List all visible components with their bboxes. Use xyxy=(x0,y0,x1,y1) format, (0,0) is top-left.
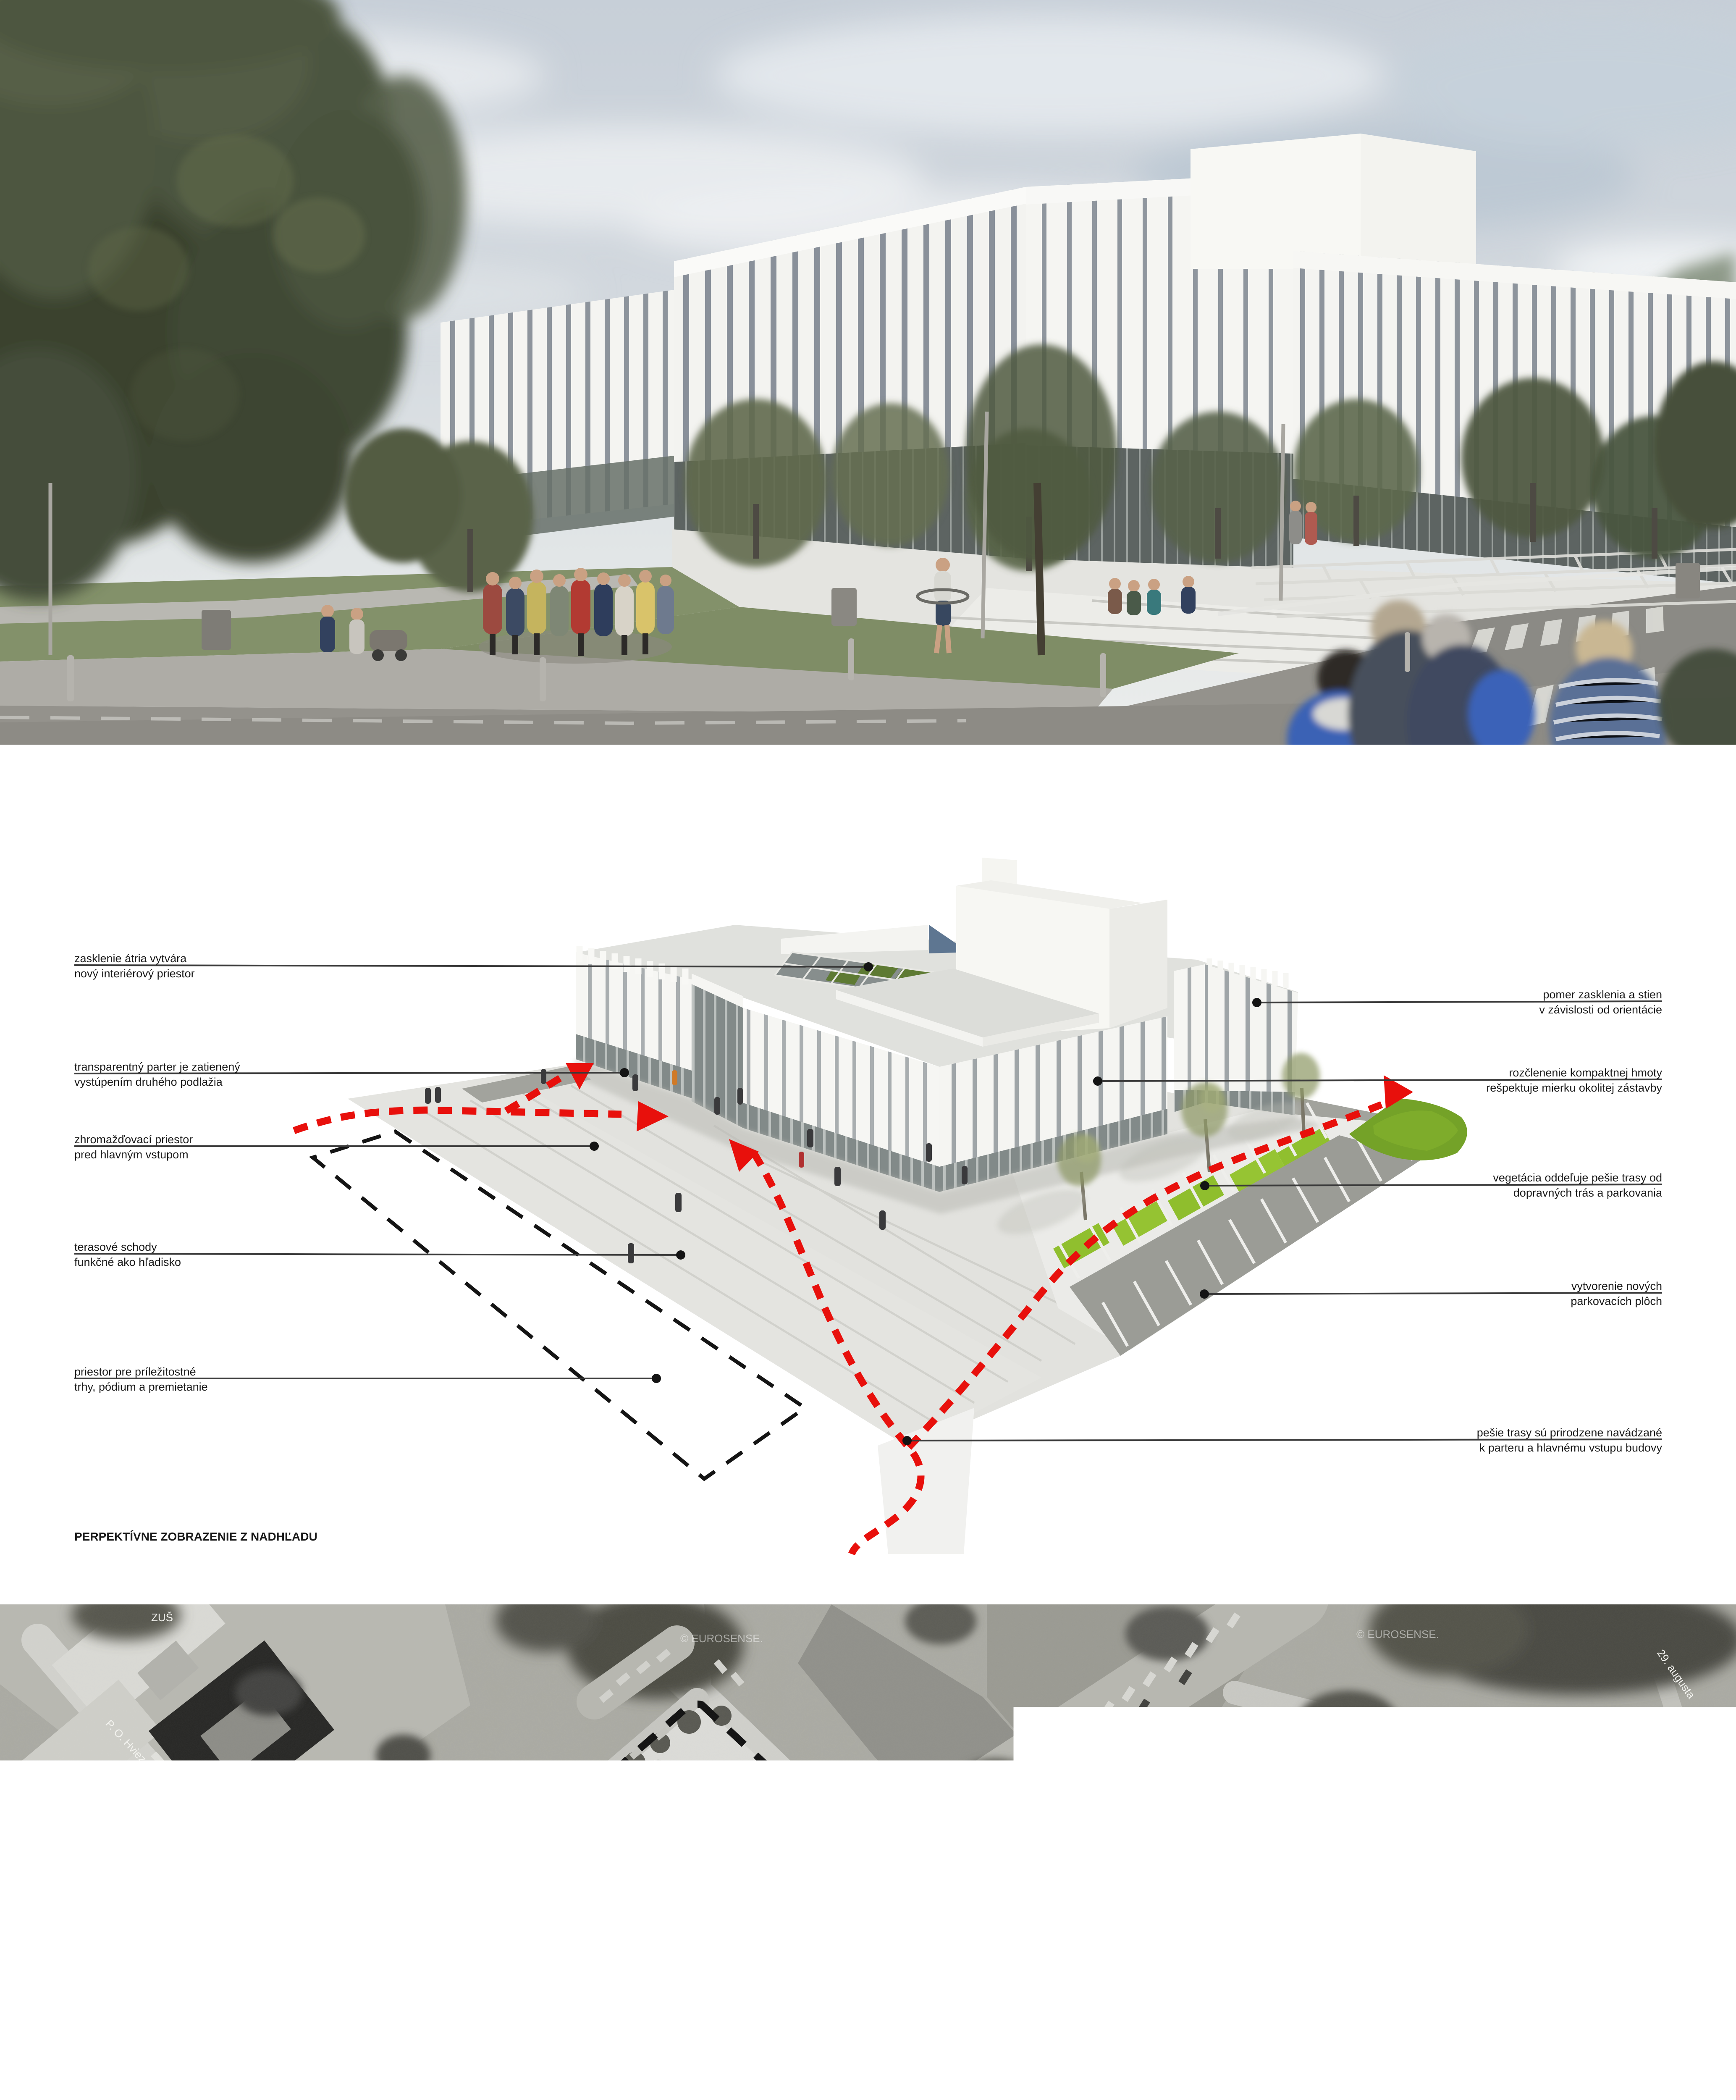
svg-text:© EUROSENSE.: © EUROSENSE. xyxy=(391,1930,473,1943)
svg-text:ZUŠ: ZUŠ xyxy=(151,1611,173,1624)
svg-text:k parteru a hlavnému vstupu bu: k parteru a hlavnému vstupu budovy xyxy=(1479,1441,1663,1454)
svg-text:© EUROSENSE.: © EUROSENSE. xyxy=(1529,1872,1611,1884)
svg-text:rešpektuje mierku okolitej zás: rešpektuje mierku okolitej zástavby xyxy=(1486,1081,1662,1094)
svg-text:vystúpením druhého podlažia: vystúpením druhého podlažia xyxy=(74,1076,223,1088)
svg-text:hrdinov: hrdinov xyxy=(500,2085,535,2097)
svg-text:trhy, pódium a premietanie: trhy, pódium a premietanie xyxy=(74,1381,208,1393)
svg-text:vegetácia oddeľuje pešie trasy: vegetácia oddeľuje pešie trasy od xyxy=(1493,1171,1662,1184)
svg-text:vytvorenie nových: vytvorenie nových xyxy=(1571,1280,1662,1292)
svg-text:zhromažďovací priestor: zhromažďovací priestor xyxy=(74,1133,193,1146)
svg-text:dopravných trás a parkovania: dopravných trás a parkovania xyxy=(1513,1186,1663,1199)
svg-text:© EUROSENSE.: © EUROSENSE. xyxy=(680,1632,763,1645)
svg-text:transparentný parter je zatien: transparentný parter je zatienený xyxy=(74,1060,240,1073)
svg-text:terasové schody: terasové schody xyxy=(74,1241,157,1253)
svg-text:nový interiérový priestor: nový interiérový priestor xyxy=(74,967,195,980)
svg-text:funkčné ako hľadisko: funkčné ako hľadisko xyxy=(74,1256,181,1268)
svg-text:PRE PODUJATIA: PRE PODUJATIA xyxy=(1163,2090,1264,2100)
svg-text:parkovacích plôch: parkovacích plôch xyxy=(1571,1295,1662,1307)
svg-text:pešie trasy sú prirodzene navá: pešie trasy sú prirodzene navádzané xyxy=(1477,1426,1662,1439)
svg-text:PERPEKTÍVNE ZOBRAZENIE Z NADHĽ: PERPEKTÍVNE ZOBRAZENIE Z NADHĽADU xyxy=(74,1530,317,1543)
svg-text:HRANICA RIEŠENÉHO ÚZEMIA: HRANICA RIEŠENÉHO ÚZEMIA xyxy=(842,1929,1029,1943)
svg-text:priestor pre príležitostné: priestor pre príležitostné xyxy=(74,1365,196,1378)
svg-text:Nám.: Nám. xyxy=(507,2071,533,2084)
svg-text:rozčlenenie kompaktnej hmoty: rozčlenenie kompaktnej hmoty xyxy=(1509,1066,1662,1079)
svg-text:PARKOVISKO: PARKOVISKO xyxy=(1163,2074,1247,2088)
svg-text:v závislosti od orientácie: v závislosti od orientácie xyxy=(1539,1003,1662,1016)
svg-text:pred hlavným vstupom: pred hlavným vstupom xyxy=(74,1148,189,1161)
svg-text:pomer zasklenia a stien: pomer zasklenia a stien xyxy=(1543,988,1662,1001)
svg-text:zasklenie átria vytvára: zasklenie átria vytvára xyxy=(74,952,187,965)
svg-text:© EUROSENSE.: © EUROSENSE. xyxy=(1356,1628,1439,1641)
